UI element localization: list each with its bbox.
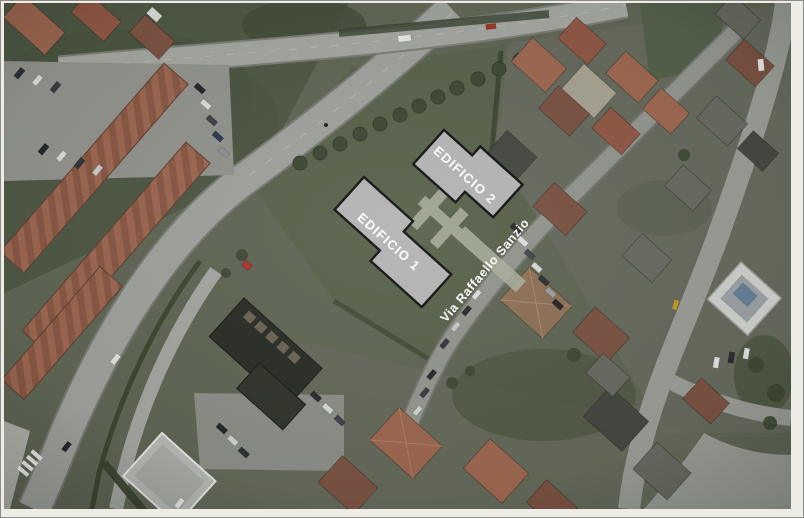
photo-vignette: [4, 3, 791, 509]
satellite-photo: EDIFICIO 1 EDIFICIO 2 Via Raffaello Sanz…: [4, 3, 791, 509]
map-scene: EDIFICIO 1 EDIFICIO 2 Via Raffaello Sanz…: [4, 3, 791, 509]
framed-aerial-image: EDIFICIO 1 EDIFICIO 2 Via Raffaello Sanz…: [0, 0, 804, 518]
